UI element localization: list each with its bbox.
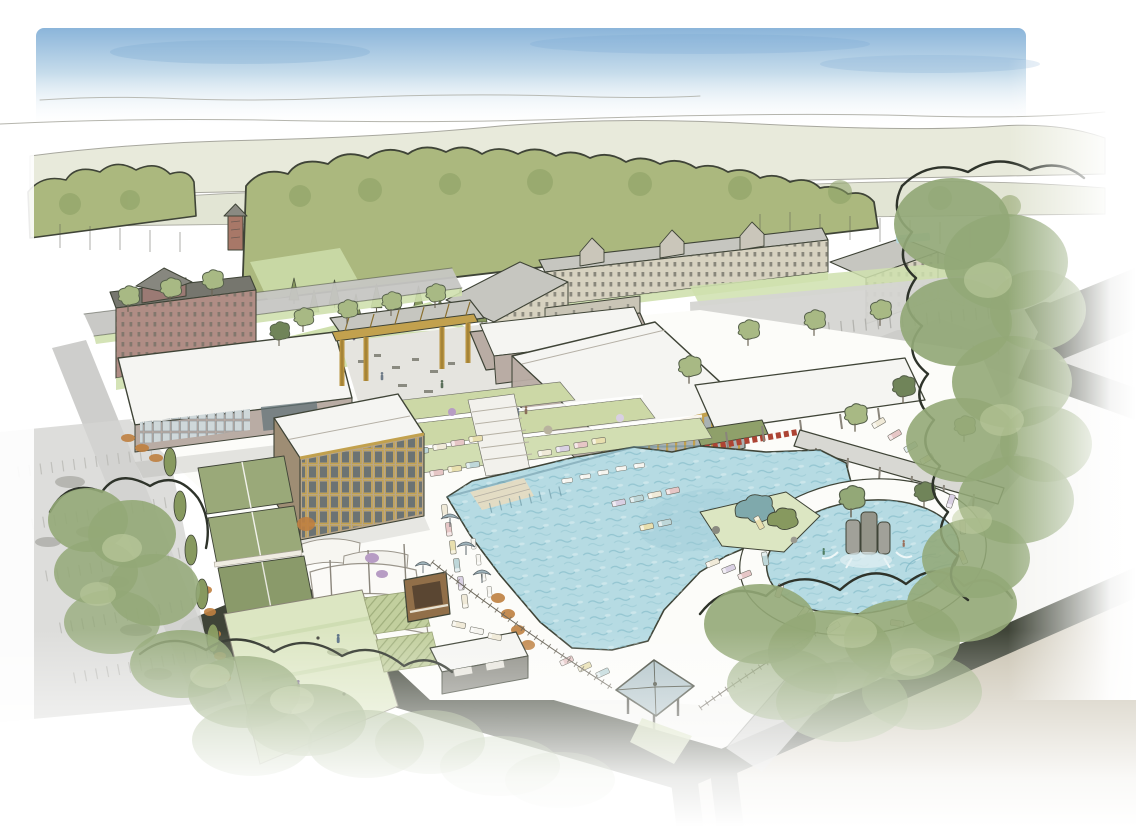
- boulder: [791, 537, 798, 544]
- flowering-shrub: [365, 553, 379, 563]
- aerial-rendering: [0, 0, 1136, 827]
- bar-cabana: [404, 572, 450, 622]
- lounge-chair: [445, 522, 452, 536]
- rendering-canvas: [0, 0, 1136, 827]
- lounge-chair: [461, 594, 468, 608]
- child-swimming: [823, 548, 825, 555]
- person: [525, 406, 528, 414]
- lounge-chair: [453, 558, 460, 572]
- sky-wash-streak: [110, 40, 370, 64]
- boulder: [712, 526, 720, 534]
- boulder: [448, 408, 456, 416]
- sky-band: [36, 28, 1040, 128]
- bottom-fade: [0, 630, 1136, 827]
- flowering-shrub: [376, 570, 388, 578]
- sky-wash-streak: [530, 34, 870, 54]
- child-swimming: [903, 540, 905, 547]
- tree: [294, 308, 314, 332]
- sky-wash-streak: [820, 55, 1040, 73]
- boulder: [616, 414, 624, 422]
- person: [381, 372, 384, 380]
- boulder: [544, 426, 553, 435]
- right-fade: [1008, 60, 1136, 700]
- left-margin: [0, 130, 34, 827]
- top-margin: [0, 0, 1136, 20]
- lounge-chair: [449, 540, 456, 554]
- person: [441, 380, 444, 388]
